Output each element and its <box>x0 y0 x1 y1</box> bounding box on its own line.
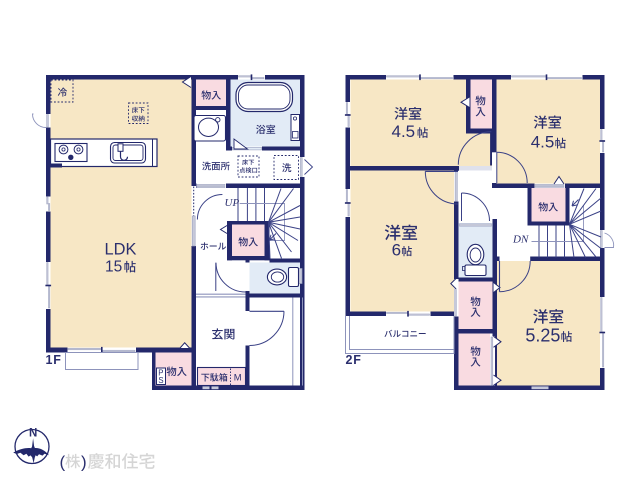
svg-text:6: 6 <box>392 241 401 260</box>
svg-text:(: ( <box>60 453 66 472</box>
svg-text:4.5: 4.5 <box>392 122 416 141</box>
svg-text:2F: 2F <box>346 353 362 367</box>
svg-text:DN: DN <box>512 234 529 246</box>
svg-text:UP: UP <box>225 197 240 209</box>
svg-text:M: M <box>234 372 242 383</box>
svg-text:LDK: LDK <box>105 241 137 259</box>
svg-text:S: S <box>158 376 163 385</box>
svg-text:): ) <box>81 453 87 472</box>
svg-text:N: N <box>29 428 37 440</box>
svg-text:1F: 1F <box>46 353 62 367</box>
svg-text:15: 15 <box>105 259 122 276</box>
svg-text:5.25: 5.25 <box>525 325 560 345</box>
svg-text:4.5: 4.5 <box>531 133 555 152</box>
